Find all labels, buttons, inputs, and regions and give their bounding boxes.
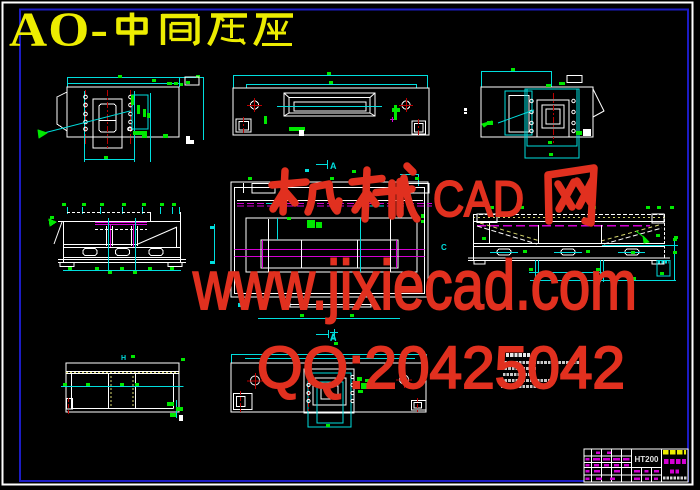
svg-text:www.jixiecad.com: www.jixiecad.com: [192, 246, 637, 324]
svg-text:AO-: AO-: [9, 2, 109, 57]
svg-text:A: A: [330, 161, 337, 171]
svg-text:HT200: HT200: [634, 455, 659, 464]
svg-text:QQ:20425042: QQ:20425042: [257, 335, 625, 401]
svg-text:H: H: [121, 355, 126, 362]
svg-text:CAD: CAD: [433, 171, 524, 227]
